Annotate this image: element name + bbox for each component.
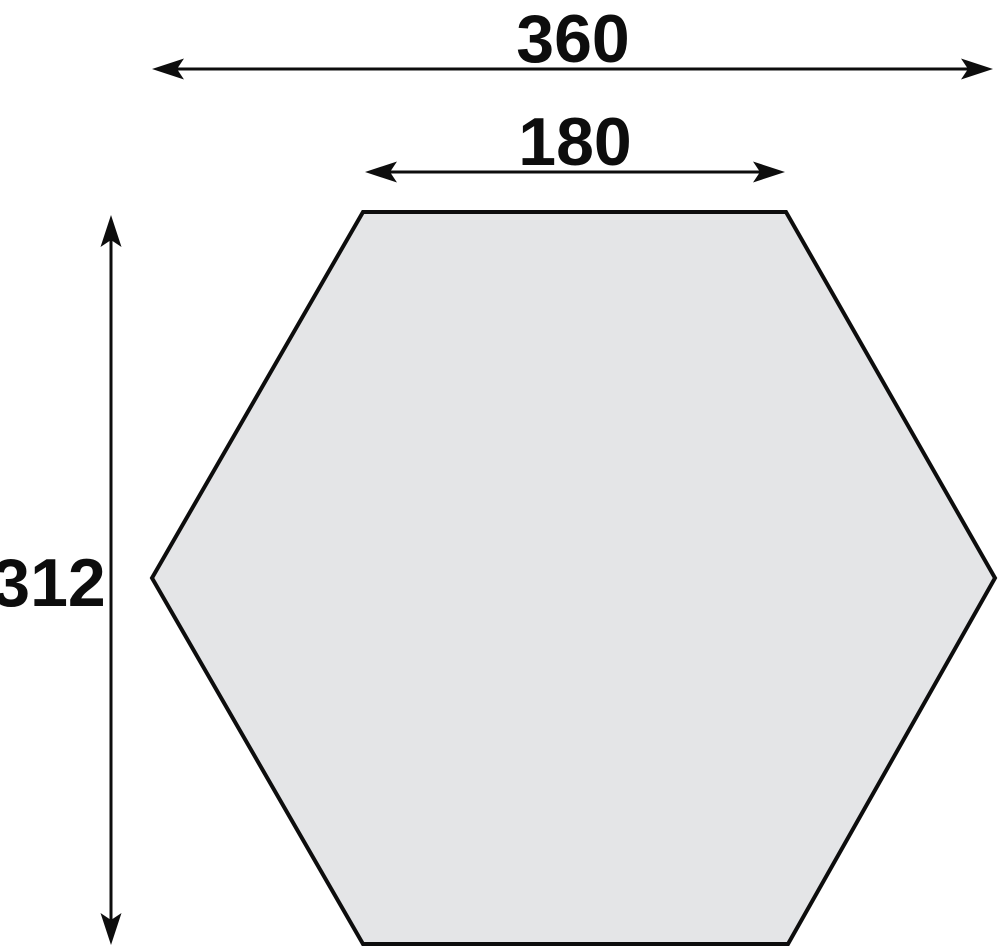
height-dimension: 312 [0,215,122,945]
width-dimension: 360 [152,1,993,80]
hexagon-dimension-diagram: 360 180 312 [0,0,1000,948]
width-dimension-label: 360 [516,1,629,77]
hexagon-shape [152,212,995,944]
top-edge-dimension-label: 180 [518,104,631,180]
diagram-canvas: 360 180 312 [0,0,1000,948]
top-edge-dimension: 180 [365,104,785,183]
height-dimension-label: 312 [0,545,106,621]
